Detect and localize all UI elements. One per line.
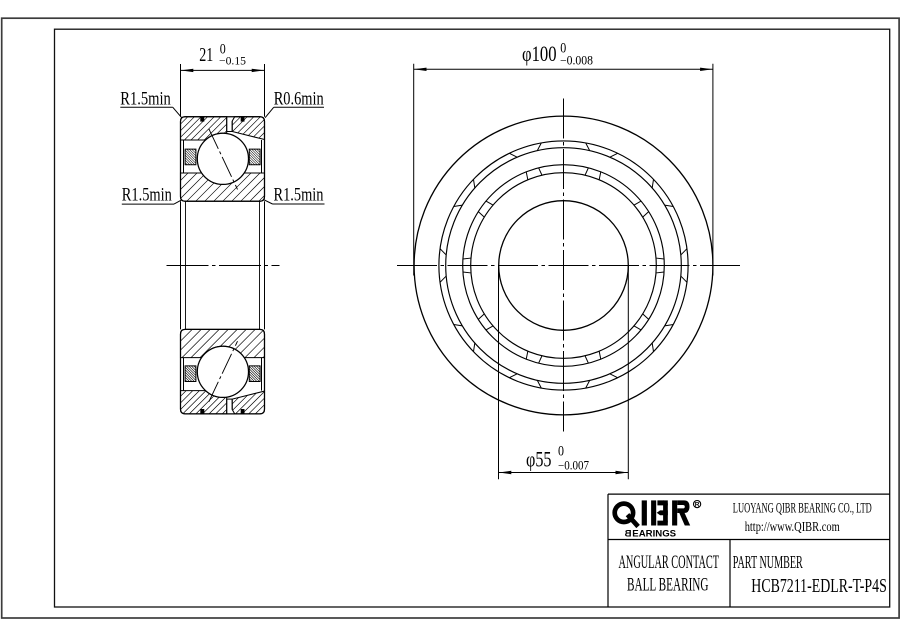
svg-text:http://www.QIBR.com: http://www.QIBR.com — [745, 519, 840, 534]
svg-text:0: 0 — [558, 444, 564, 460]
svg-text:B: B — [624, 529, 631, 540]
svg-text:R1.5min: R1.5min — [120, 89, 171, 110]
svg-text:HCB7211-EDLR-T-P4S: HCB7211-EDLR-T-P4S — [751, 575, 887, 597]
svg-text:R: R — [695, 502, 700, 509]
svg-text:21: 21 — [199, 45, 213, 66]
svg-text:−0.15: −0.15 — [219, 54, 246, 67]
svg-text:EARINGS: EARINGS — [632, 529, 676, 540]
svg-text:−0.008: −0.008 — [560, 54, 593, 68]
svg-text:R1.5min: R1.5min — [274, 184, 324, 205]
svg-text:PART NUMBER: PART NUMBER — [733, 552, 803, 572]
svg-text:R1.5min: R1.5min — [122, 184, 172, 205]
svg-text:−0.007: −0.007 — [558, 458, 589, 472]
svg-text:BALL BEARING: BALL BEARING — [627, 575, 709, 596]
svg-text:LUOYANG QIBR BEARING CO., LTD: LUOYANG QIBR BEARING CO., LTD — [733, 500, 872, 516]
svg-text:ANGULAR CONTACT: ANGULAR CONTACT — [619, 552, 720, 573]
svg-text:φ100: φ100 — [522, 41, 557, 66]
svg-text:φ55: φ55 — [526, 446, 552, 471]
svg-text:R0.6min: R0.6min — [274, 89, 324, 110]
